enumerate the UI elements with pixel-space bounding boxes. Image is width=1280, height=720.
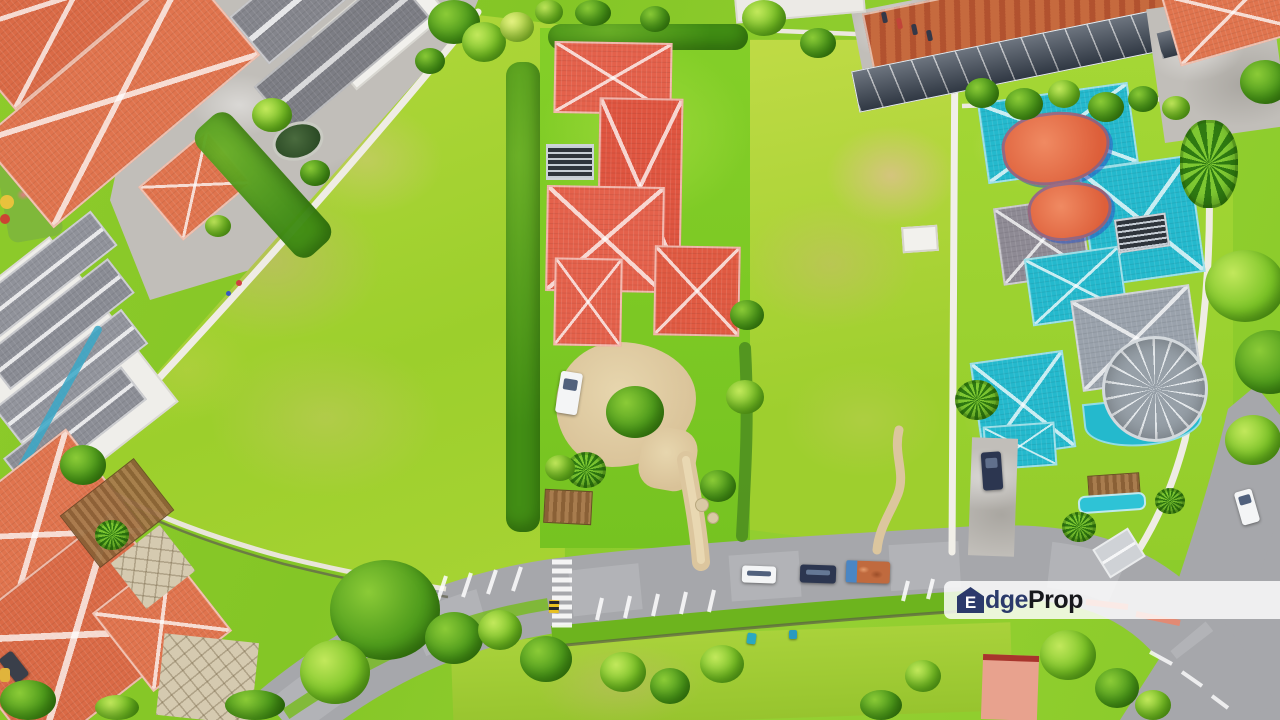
tree: [520, 636, 572, 682]
tree: [800, 28, 836, 58]
mansion-skylight: [546, 144, 594, 180]
tree: [1135, 690, 1171, 720]
tree: [300, 640, 370, 704]
car-windshield: [985, 458, 998, 469]
tree: [1040, 630, 1096, 680]
house-icon: E: [957, 587, 984, 613]
tree: [726, 380, 764, 414]
palm-tree: [95, 520, 129, 550]
tree: [415, 48, 445, 74]
truck-cab: [846, 560, 858, 582]
tall-palm-cluster: [1180, 120, 1238, 208]
salmon-building-bottom: [981, 654, 1039, 720]
tree: [545, 455, 575, 481]
car-windshield: [806, 570, 831, 576]
tree: [600, 652, 646, 692]
white-car-parked-road: [742, 565, 777, 583]
tree: [1095, 668, 1139, 708]
palm-tree: [1062, 512, 1096, 542]
car-windshield: [563, 378, 579, 391]
brand-text-navy: dge: [985, 586, 1028, 615]
car-windshield: [747, 570, 770, 576]
tree: [650, 668, 690, 704]
red-mansion-roof-rightwing: [653, 245, 741, 336]
tree: [700, 645, 744, 683]
teal-house-skylight: [1114, 213, 1170, 254]
tree: [1162, 96, 1190, 120]
tree: [205, 215, 231, 237]
tree: [1205, 250, 1280, 322]
stepping-stone: [707, 512, 719, 524]
tree: [1005, 88, 1043, 120]
tree: [1088, 92, 1124, 122]
tree: [300, 160, 330, 186]
dark-car-teal-driveway: [981, 451, 1004, 490]
teal-bin: [789, 630, 797, 639]
tree: [252, 98, 292, 132]
tree: [575, 0, 611, 26]
tree: [1225, 415, 1280, 465]
tree: [730, 300, 764, 330]
yard-object-blue: [226, 291, 231, 296]
palm-tree: [1155, 488, 1185, 514]
truck-parked-road: [846, 560, 891, 584]
tree: [225, 690, 285, 720]
tree: [95, 695, 139, 720]
tree: [742, 0, 786, 36]
tree: [0, 680, 56, 720]
tree: [1048, 80, 1080, 108]
teal-bin: [746, 632, 756, 644]
striped-bollard: [549, 600, 560, 614]
tree: [700, 470, 736, 502]
yellow-umbrella: [0, 195, 14, 209]
tree: [965, 78, 999, 108]
hedge-line-right-of-mansion: [742, 348, 747, 536]
brand-letter-in-icon: E: [965, 592, 976, 613]
driveway-island-bush: [606, 386, 664, 438]
tree: [500, 12, 534, 42]
tree: [860, 690, 902, 720]
dark-car-parked-road: [800, 564, 837, 583]
red-canopy: [0, 214, 10, 224]
tree: [1128, 86, 1158, 112]
tree: [905, 660, 941, 692]
white-shed-in-field: [901, 225, 939, 253]
brand-text-black: Prop: [1028, 586, 1083, 615]
tree: [640, 6, 670, 32]
tree: [60, 445, 106, 485]
circular-turret-roof: [1102, 336, 1208, 442]
red-mansion-roof-bottomwing: [553, 257, 623, 346]
mansion-hedge-left: [506, 62, 540, 532]
garden-deck: [543, 489, 593, 525]
palm-tree: [955, 380, 999, 420]
yellow-object-bottomleft: [0, 668, 10, 682]
tree: [425, 612, 483, 664]
yard-object-red: [236, 280, 242, 286]
stepping-stone: [695, 498, 709, 512]
car-windshield: [1238, 494, 1252, 506]
tree: [535, 0, 563, 24]
edgeprop-watermark: E dge Prop: [944, 581, 1280, 619]
property-fence-mid: [952, 36, 955, 552]
tree: [478, 610, 522, 650]
aerial-photo-scene: E dge Prop: [0, 0, 1280, 720]
